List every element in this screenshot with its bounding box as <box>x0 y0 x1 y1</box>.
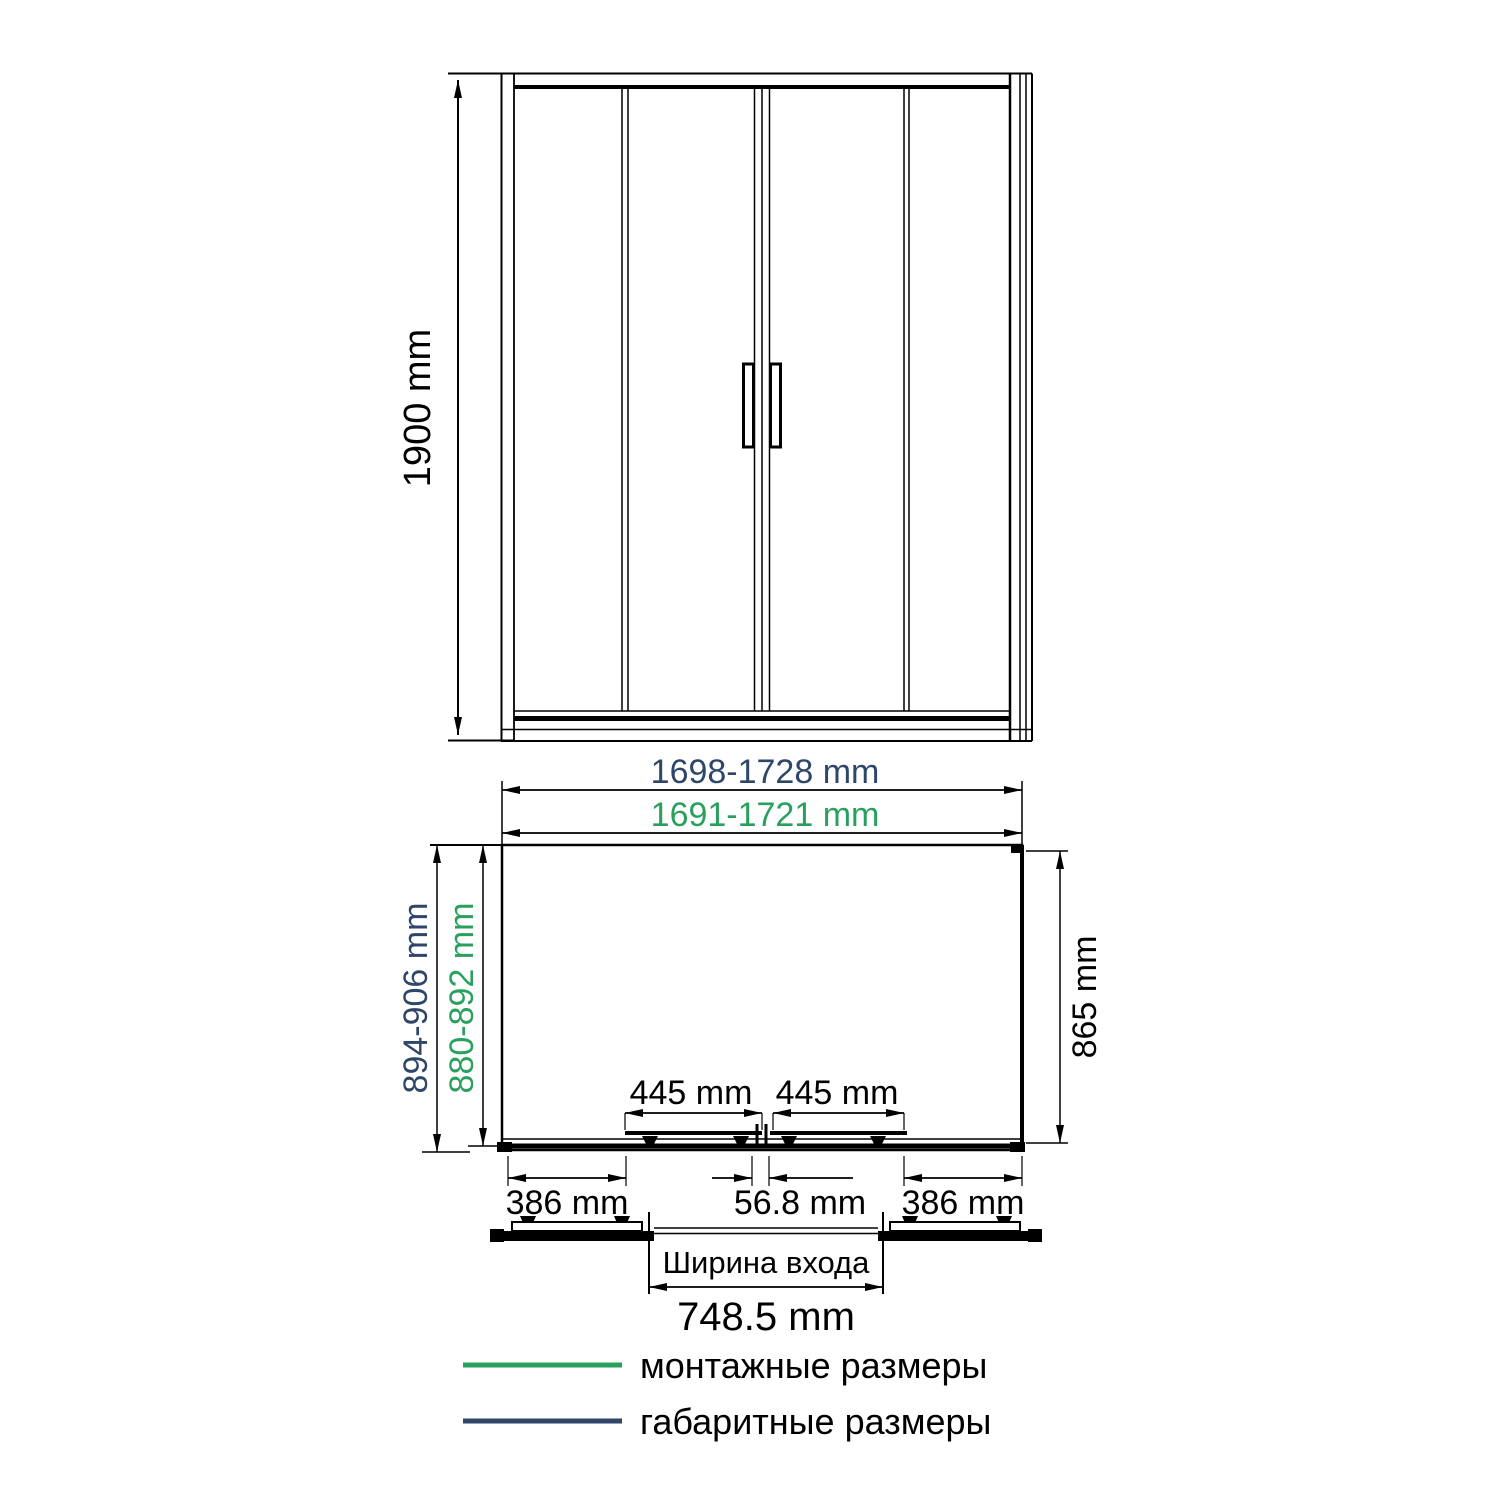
drawing-page: 1900 mm <box>0 0 1500 1500</box>
plan-center-overlap-label: 56.8 mm <box>734 1184 866 1222</box>
right-stacked-doors <box>878 1231 1034 1241</box>
right-handle <box>771 364 781 447</box>
plan-mounting-depth-label: 880-892 mm <box>443 903 481 1094</box>
entry-width-label: 748.5 mm <box>677 1295 855 1339</box>
plan-overall-depth-label: 894-906 mm <box>397 903 435 1094</box>
left-stacked-doors <box>498 1231 654 1241</box>
right-wall-profile <box>1010 1142 1025 1152</box>
elevation-height-label: 1900 mm <box>397 329 439 487</box>
right-top-wall-profile <box>1011 844 1023 853</box>
left-handle <box>744 364 754 447</box>
legend-overall-label: габаритные размеры <box>640 1401 991 1442</box>
left-wall-profile <box>497 1142 512 1152</box>
technical-drawing-canvas: 1900 mm <box>0 0 1500 1500</box>
plan-side-panel-label: 865 mm <box>1066 936 1104 1059</box>
plan-mounting-width-label: 1691-1721 mm <box>651 796 880 834</box>
shower-tray-outline <box>502 845 1022 1150</box>
entry-width-caption: Ширина входа <box>663 1245 871 1280</box>
plan-left-door-label: 445 mm <box>630 1074 753 1112</box>
plan-overall-width-label: 1698-1728 mm <box>651 753 880 791</box>
plan-right-door-label: 445 mm <box>776 1074 899 1112</box>
legend-mounting-label: монтажные размеры <box>640 1345 987 1386</box>
